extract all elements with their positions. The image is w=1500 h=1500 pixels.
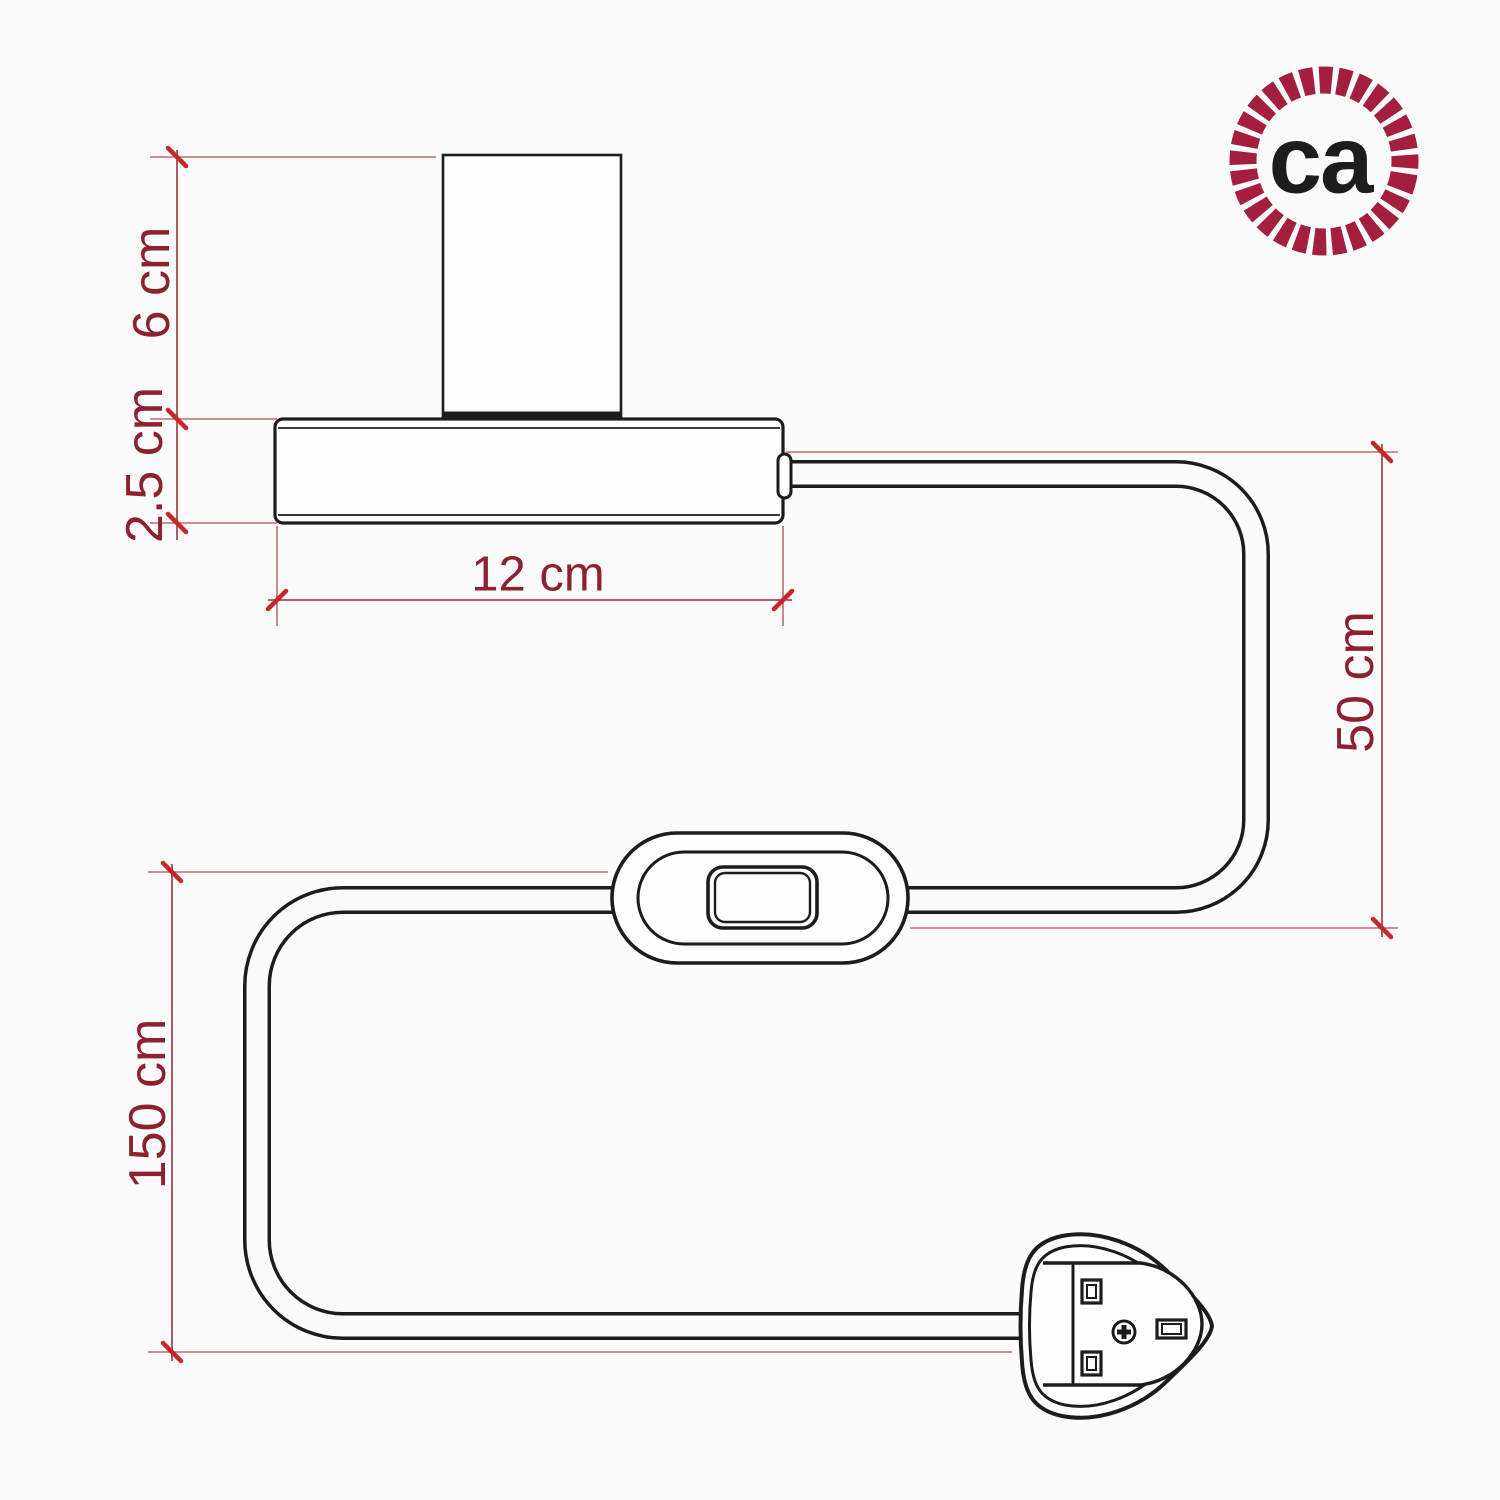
cable-lower-outline	[257, 900, 1035, 1326]
dimension-label-base-height: 2.5 cm	[119, 387, 171, 543]
drawing-canvas	[0, 0, 1500, 1500]
lamp	[275, 155, 791, 523]
dimension-label-cable-upper: 50 cm	[1330, 611, 1382, 753]
uk-plug	[1021, 1234, 1213, 1417]
dimension-label-base-width: 12 cm	[471, 551, 604, 600]
lamp-base	[275, 419, 783, 523]
dimension-label-lamp-height: 6 cm	[126, 227, 178, 340]
lamp-base-cable-gland	[778, 454, 791, 498]
dimensions	[148, 148, 1398, 1361]
brand-logo-text: ca	[1269, 106, 1372, 216]
inline-switch	[612, 833, 908, 963]
dimension-drawing: 6 cm 2.5 cm 12 cm 50 cm 150 cm ca	[0, 0, 1500, 1500]
cable-lower-core	[257, 900, 1035, 1326]
dimension-label-cable-lower: 150 cm	[122, 1019, 174, 1190]
lamp-socket-cylinder	[443, 155, 621, 417]
